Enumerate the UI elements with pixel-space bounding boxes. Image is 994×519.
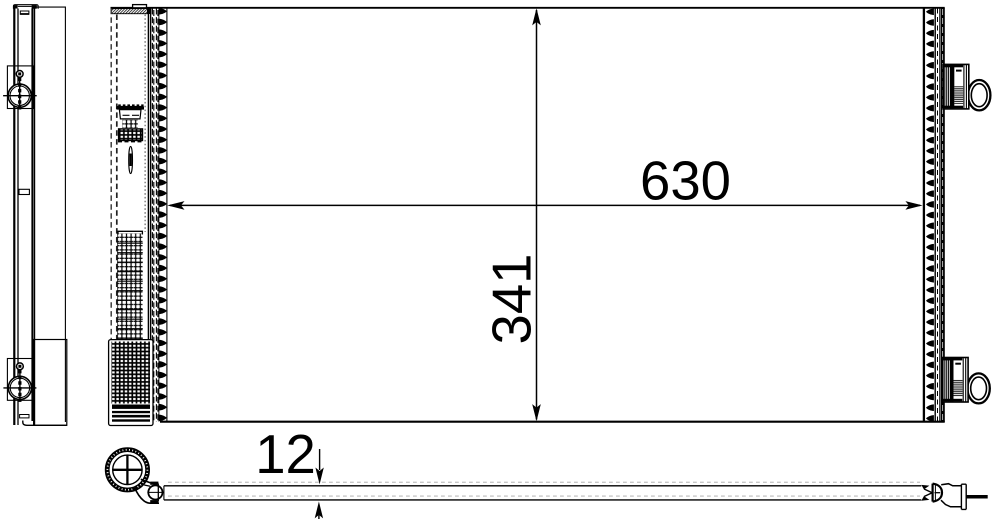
svg-text:341: 341 [482,254,543,345]
svg-text:12: 12 [255,424,316,485]
svg-text:630: 630 [640,151,731,212]
